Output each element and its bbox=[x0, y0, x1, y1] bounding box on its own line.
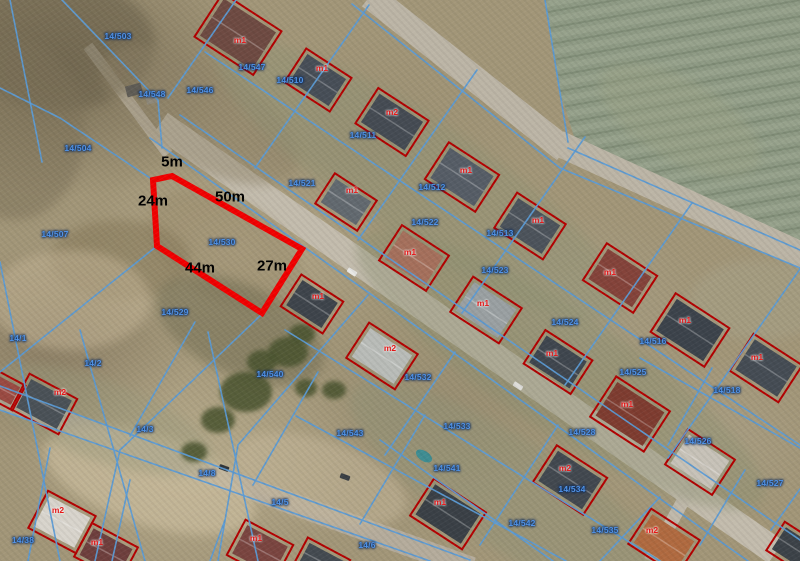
parcel-boundary-line bbox=[771, 489, 800, 530]
building bbox=[346, 323, 418, 390]
building bbox=[294, 537, 350, 561]
tree bbox=[247, 350, 277, 374]
building bbox=[730, 334, 800, 402]
tree bbox=[220, 372, 272, 412]
tree bbox=[322, 381, 346, 399]
aerial-map-viewport[interactable]: 14/50314/54814/50414/50714/53014/52914/5… bbox=[0, 0, 800, 561]
cadastral-overlay-map bbox=[0, 0, 800, 561]
tree bbox=[181, 442, 207, 462]
